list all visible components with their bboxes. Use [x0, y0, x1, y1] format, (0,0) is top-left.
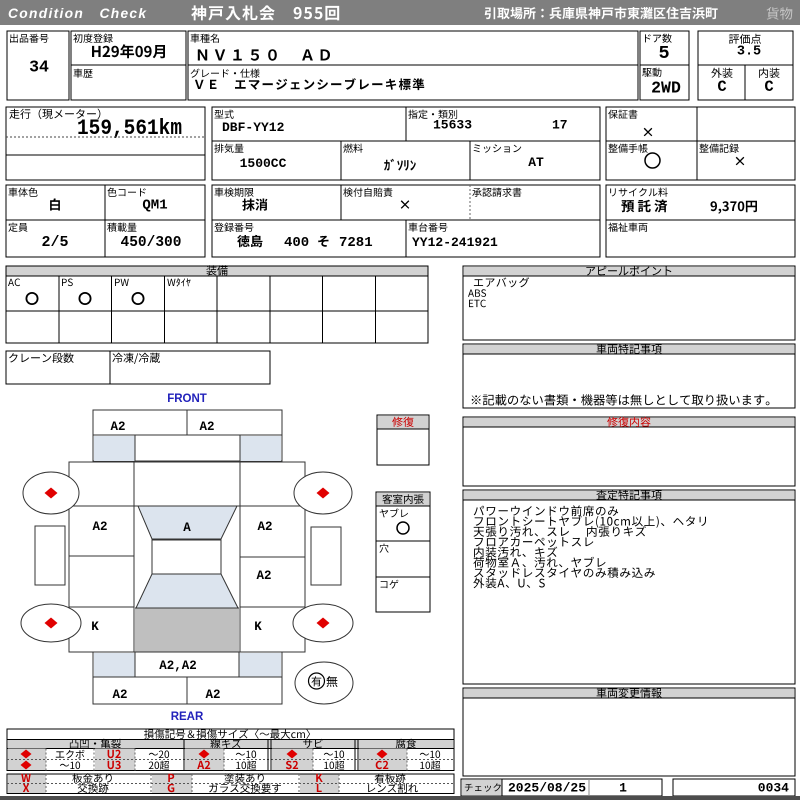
svg-text:2025/08/25: 2025/08/25: [508, 781, 586, 796]
svg-text:K: K: [254, 620, 262, 634]
svg-text:YY12-241921: YY12-241921: [412, 235, 498, 250]
svg-text:1: 1: [619, 781, 627, 796]
svg-text:2/5: 2/5: [41, 234, 68, 251]
svg-text:A2: A2: [92, 520, 107, 534]
svg-text:A2: A2: [205, 688, 220, 702]
svg-text:Condition Check: Condition Check: [8, 6, 147, 21]
svg-text:A2,A2: A2,A2: [159, 659, 197, 673]
svg-text:17: 17: [552, 118, 568, 133]
svg-text:400: 400: [284, 235, 309, 251]
svg-text:5: 5: [658, 43, 669, 64]
svg-text:15633: 15633: [433, 118, 472, 133]
svg-text:AT: AT: [528, 155, 544, 170]
svg-text:A2: A2: [199, 420, 214, 434]
svg-text:K: K: [91, 620, 99, 634]
svg-text:A2: A2: [112, 688, 127, 702]
svg-text:QM1: QM1: [142, 198, 167, 214]
svg-text:2WD: 2WD: [651, 79, 681, 98]
svg-text:FRONT: FRONT: [167, 393, 207, 405]
svg-text:3.5: 3.5: [737, 45, 761, 60]
svg-text:0034: 0034: [758, 781, 789, 796]
svg-text:REAR: REAR: [171, 711, 204, 723]
svg-text:34: 34: [29, 58, 49, 77]
svg-text:C: C: [764, 78, 773, 96]
svg-text:A2: A2: [110, 420, 125, 434]
svg-text:A2: A2: [256, 569, 271, 583]
svg-text:A2: A2: [257, 520, 272, 534]
svg-text:A: A: [183, 521, 191, 535]
svg-text:DBF-YY12: DBF-YY12: [222, 120, 285, 135]
svg-text:450/300: 450/300: [121, 235, 182, 251]
svg-text:7281: 7281: [339, 235, 373, 251]
svg-text:1500CC: 1500CC: [240, 156, 287, 171]
svg-text:C: C: [717, 78, 726, 96]
